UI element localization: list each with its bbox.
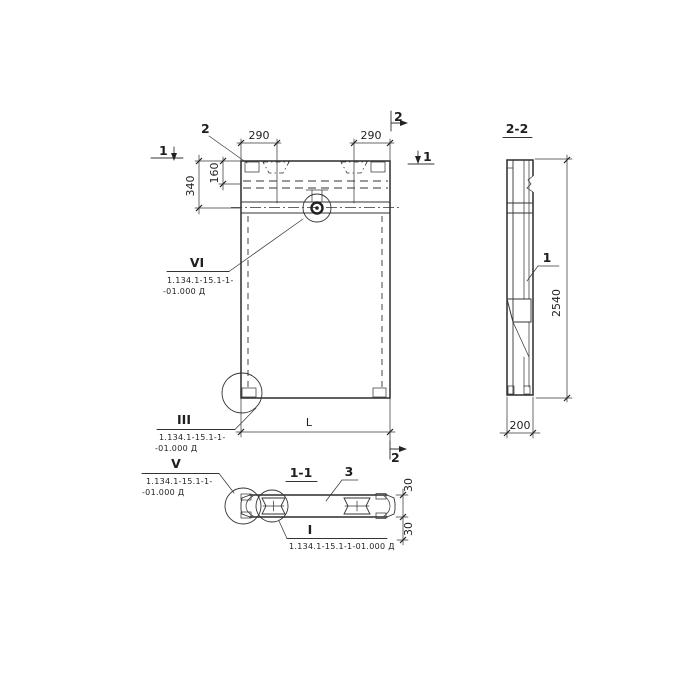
marker-1-right-text: 1 xyxy=(423,149,432,164)
dim-290-left-text: 290 xyxy=(249,129,270,142)
paper-background xyxy=(0,0,700,700)
engineering-drawing-canvas: 290 290 340 160 xyxy=(0,0,700,700)
dim-30-top-text: 30 xyxy=(402,478,415,492)
dim-160-text: 160 xyxy=(208,163,221,184)
callout-2-text: 2 xyxy=(201,121,210,136)
detail-iii-ref1: 1.134.1-15.1-1- xyxy=(159,433,226,442)
marker-1-left-text: 1 xyxy=(159,143,168,158)
dim-L-text: L xyxy=(306,416,313,429)
detail-v-roman: V xyxy=(171,456,181,471)
marker-2-bottom-text: 2 xyxy=(391,450,400,465)
detail-v-ref1: 1.134.1-15.1-1- xyxy=(146,477,213,486)
section-2-2-title-text: 2-2 xyxy=(506,121,529,136)
dim-290-right-text: 290 xyxy=(361,129,382,142)
detail-vi-ref2: -01.000 Д xyxy=(163,287,205,296)
detail-vi-roman: VI xyxy=(190,255,204,270)
detail-i-ref1: 1.134.1-15.1-1-01.000 Д xyxy=(289,542,395,551)
dim-200-text: 200 xyxy=(510,419,531,432)
callout-3-text: 3 xyxy=(345,464,354,479)
dim-2540-text: 2540 xyxy=(550,289,563,317)
marker-2-top-text: 2 xyxy=(394,109,403,124)
section-2-2-title: 2-2 xyxy=(503,121,532,138)
section-1-1-title-text: 1-1 xyxy=(290,465,313,480)
dim-30-bottom-text: 30 xyxy=(402,522,415,536)
detail-v-ref2: -01.000 Д xyxy=(142,488,184,497)
detail-iii-roman: III xyxy=(177,412,191,427)
dim-340-text: 340 xyxy=(184,176,197,197)
detail-vi-ref1: 1.134.1-15.1-1- xyxy=(167,276,234,285)
callout-1-text: 1 xyxy=(543,250,552,265)
detail-i-roman: I xyxy=(308,522,313,537)
detail-iii-ref2: -01.000 Д xyxy=(155,444,197,453)
